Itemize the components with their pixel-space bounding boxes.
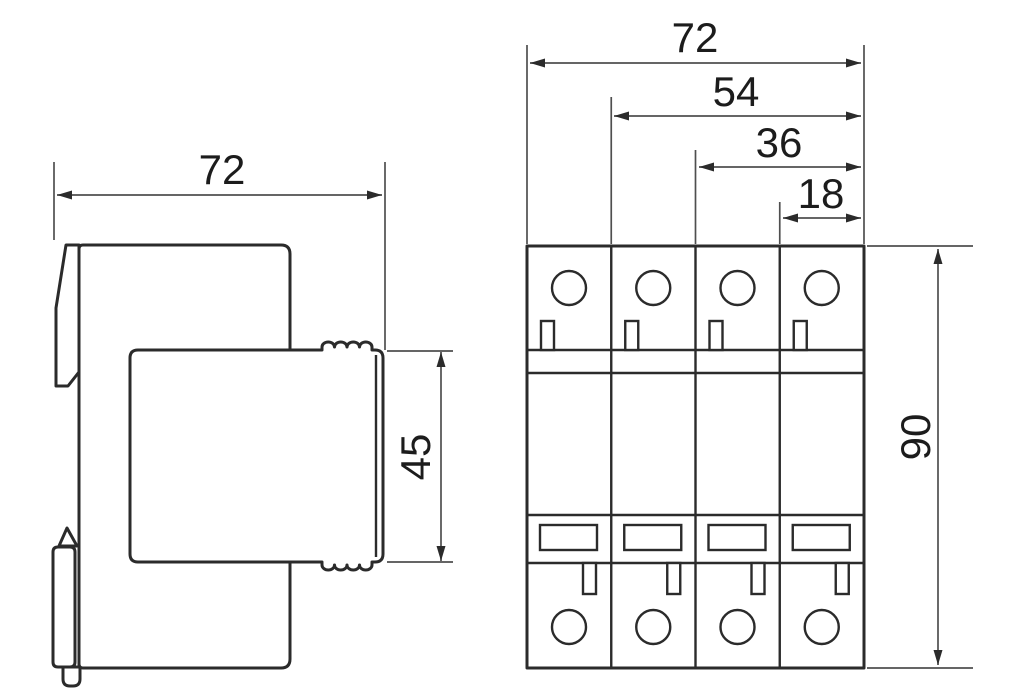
arrowhead-right bbox=[846, 112, 861, 121]
terminal-screw-top bbox=[636, 271, 670, 305]
dim-label-height: 90 bbox=[892, 414, 939, 461]
arrowhead-left bbox=[57, 191, 72, 200]
dim-label-36: 36 bbox=[756, 119, 803, 166]
side-view: 72 45 bbox=[53, 146, 453, 686]
test-slot-top bbox=[794, 321, 807, 350]
arrowhead-left bbox=[614, 112, 629, 121]
side-view-dim-module-height-45: 45 bbox=[387, 351, 453, 562]
dim-label-18: 18 bbox=[798, 170, 845, 217]
terminal-screw-bottom bbox=[636, 610, 670, 644]
test-slot-top bbox=[625, 321, 638, 350]
status-indicator-window bbox=[793, 525, 850, 550]
side-view-upper-flange bbox=[56, 245, 79, 386]
arrowhead-top bbox=[934, 249, 943, 264]
dim-label-side-width: 72 bbox=[199, 146, 246, 193]
dimension-drawing-svg: 72 45 bbox=[0, 0, 1024, 694]
arrowhead-right bbox=[846, 214, 861, 223]
side-view-din-clip bbox=[53, 547, 75, 667]
dim-label-front-width: 72 bbox=[672, 14, 719, 61]
front-view-dim-height-90: 90 bbox=[867, 246, 973, 668]
status-indicator-window bbox=[540, 525, 597, 550]
front-view: 72 54 36 18 bbox=[527, 14, 973, 668]
arrowhead-left bbox=[699, 163, 714, 172]
arrowhead-right bbox=[846, 59, 861, 68]
front-view-dim-18: 18 bbox=[780, 170, 861, 244]
test-slot-bottom bbox=[836, 563, 849, 594]
arrowhead-right bbox=[367, 191, 382, 200]
terminal-screw-bottom bbox=[552, 610, 586, 644]
status-indicator-window bbox=[709, 525, 766, 550]
dim-label-module-height: 45 bbox=[392, 434, 439, 481]
terminal-screw-bottom bbox=[805, 610, 839, 644]
test-slot-bottom bbox=[752, 563, 765, 594]
terminal-screw-top bbox=[721, 271, 755, 305]
arrowhead-bottom bbox=[934, 650, 943, 665]
terminal-screw-top bbox=[552, 271, 586, 305]
arrowhead-bottom bbox=[437, 546, 446, 561]
arrowhead-top bbox=[437, 352, 446, 367]
side-view-clip-pointer-triangle bbox=[59, 528, 77, 546]
arrowhead-left bbox=[530, 59, 545, 68]
side-view-release-tab bbox=[63, 667, 80, 686]
terminal-screw-top bbox=[805, 271, 839, 305]
arrowhead-right bbox=[846, 163, 861, 172]
side-view-plug-module bbox=[130, 342, 383, 570]
status-indicator-window bbox=[624, 525, 681, 550]
terminal-screw-bottom bbox=[721, 610, 755, 644]
test-slot-bottom bbox=[583, 563, 596, 594]
technical-drawing-canvas: 72 45 bbox=[0, 0, 1024, 694]
test-slot-top bbox=[710, 321, 723, 350]
dim-label-54: 54 bbox=[713, 68, 760, 115]
test-slot-bottom bbox=[667, 563, 680, 594]
test-slot-top bbox=[541, 321, 554, 350]
arrowhead-left bbox=[783, 214, 798, 223]
